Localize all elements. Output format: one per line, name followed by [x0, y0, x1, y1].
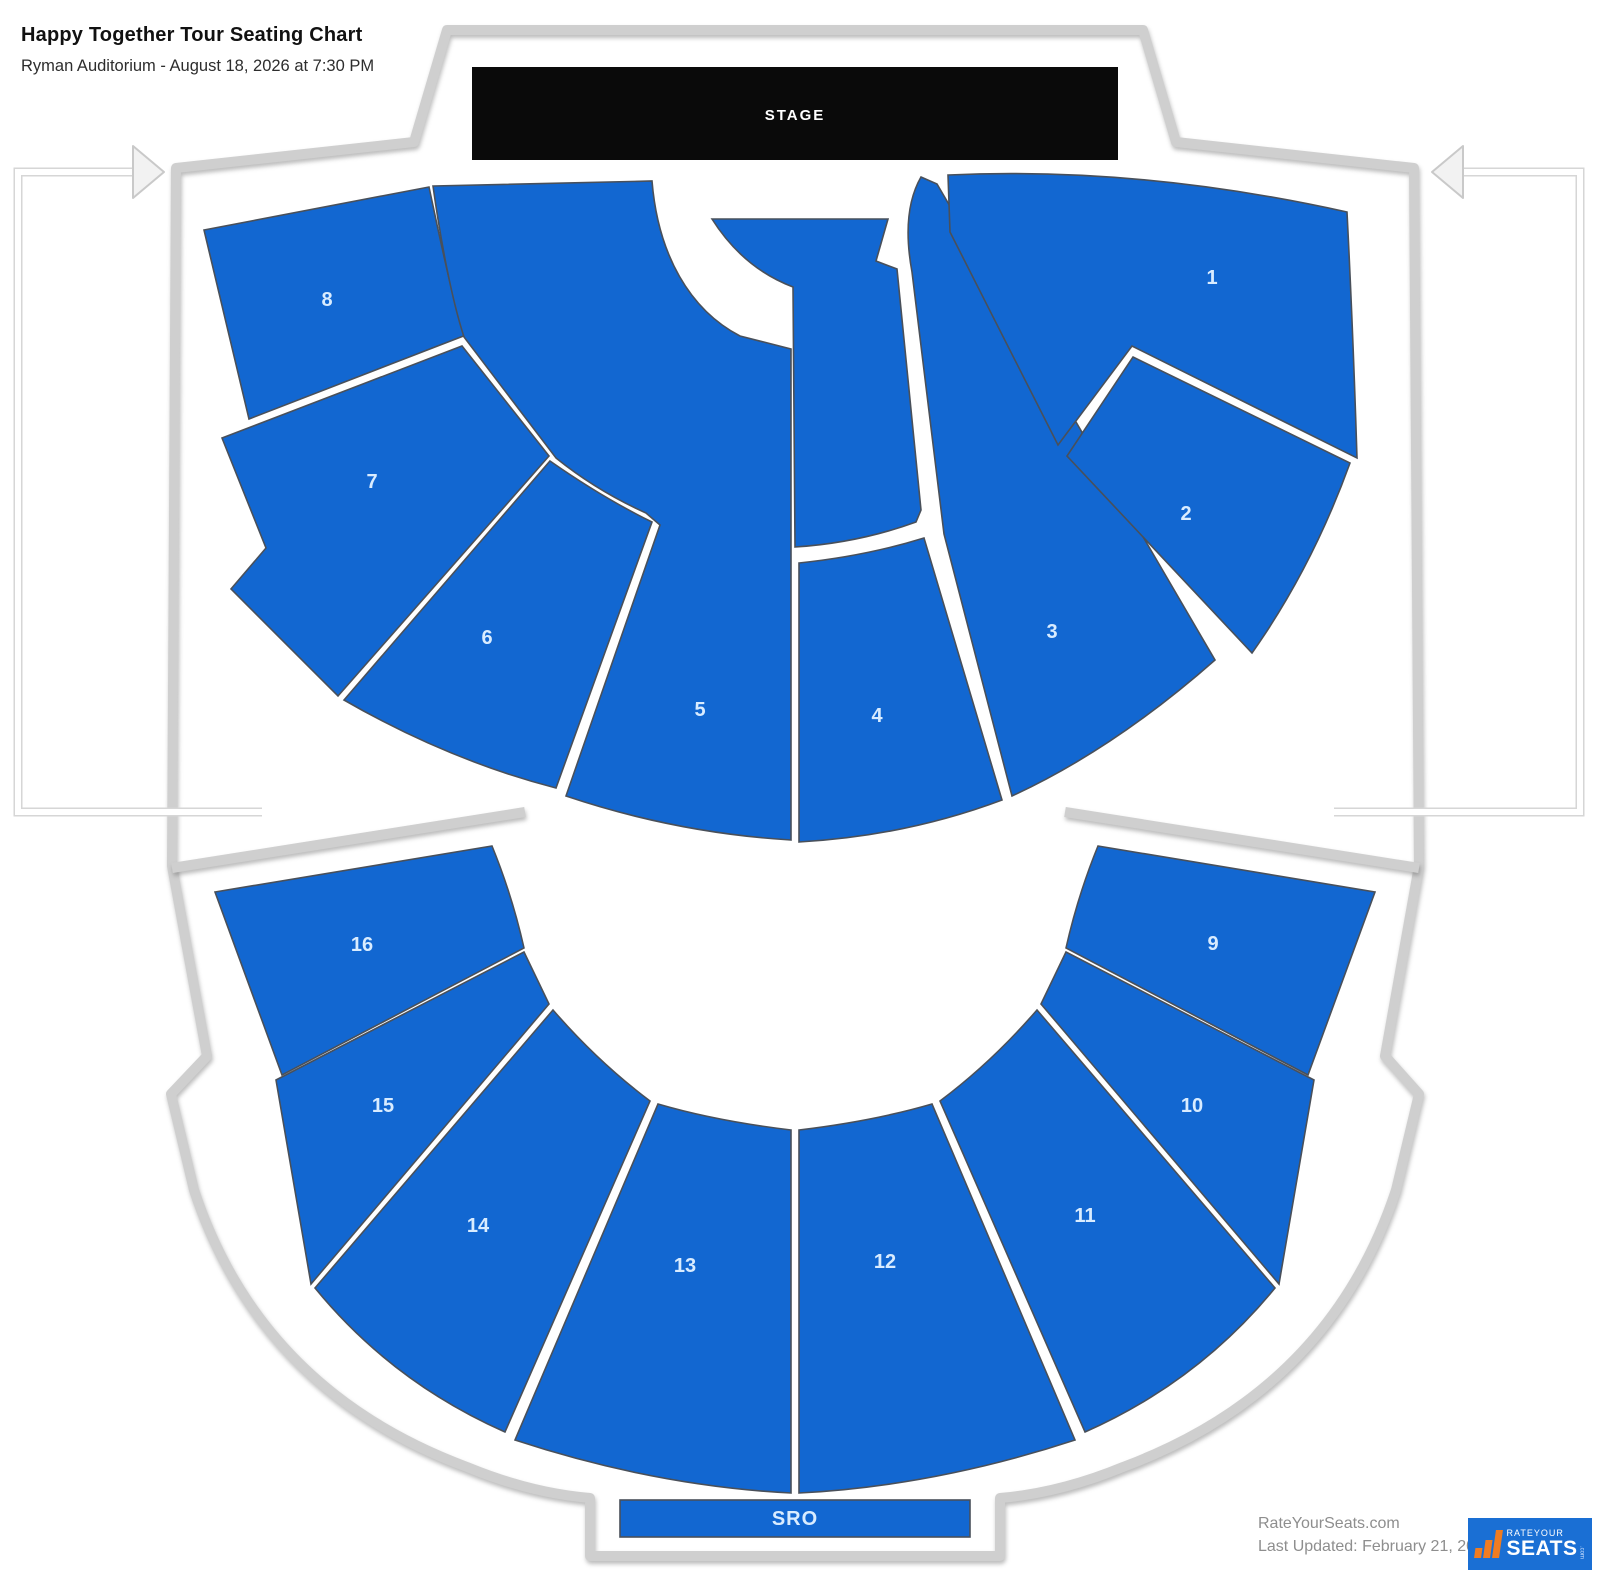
section-label: 1: [1206, 267, 1217, 289]
section-label: 16: [351, 934, 373, 956]
entrance-arrow-right-icon: [1432, 146, 1463, 198]
section-label: 4: [871, 705, 883, 727]
chart-header: Happy Together Tour Seating Chart Ryman …: [21, 24, 374, 76]
section-label: 8: [321, 289, 332, 311]
event-subtitle: Ryman Auditorium - August 18, 2026 at 7:…: [21, 57, 374, 76]
logo-bars-icon: [1474, 1530, 1503, 1558]
section-label: 9: [1207, 933, 1218, 955]
stage: STAGE: [472, 67, 1118, 160]
seating-chart-page: Happy Together Tour Seating Chart Ryman …: [0, 0, 1600, 1583]
section-label: 15: [372, 1095, 394, 1117]
footer-site: RateYourSeats.com: [1258, 1512, 1493, 1535]
section-label: 14: [467, 1215, 490, 1237]
logo-text-suffix: .com: [1578, 1546, 1584, 1559]
section-label: 6: [481, 627, 492, 649]
page-title: Happy Together Tour Seating Chart: [21, 24, 374, 47]
seating-map: STAGE 8 7 6 5 4 3: [0, 0, 1600, 1583]
section-sro[interactable]: SRO: [620, 1500, 970, 1537]
entrance-path-right: [1334, 146, 1580, 812]
section-label: 11: [1074, 1205, 1095, 1227]
footer-updated: Last Updated: February 21, 2026: [1258, 1535, 1493, 1558]
section-label: 10: [1181, 1095, 1203, 1117]
section-label: 12: [874, 1251, 896, 1273]
rateyourseats-logo: RATEYOUR SEATS .com: [1468, 1518, 1592, 1570]
section-label: 7: [366, 471, 377, 493]
logo-text-bottom: SEATS: [1507, 1538, 1578, 1559]
section-label: 5: [694, 699, 705, 721]
section-label: 3: [1046, 621, 1057, 643]
footer-credits: RateYourSeats.com Last Updated: February…: [1258, 1512, 1493, 1558]
stage-label: STAGE: [765, 107, 826, 124]
section-label: 13: [674, 1255, 696, 1277]
sro-label: SRO: [772, 1508, 818, 1530]
section-label: 2: [1180, 503, 1191, 525]
entrance-arrow-left-icon: [133, 146, 164, 198]
